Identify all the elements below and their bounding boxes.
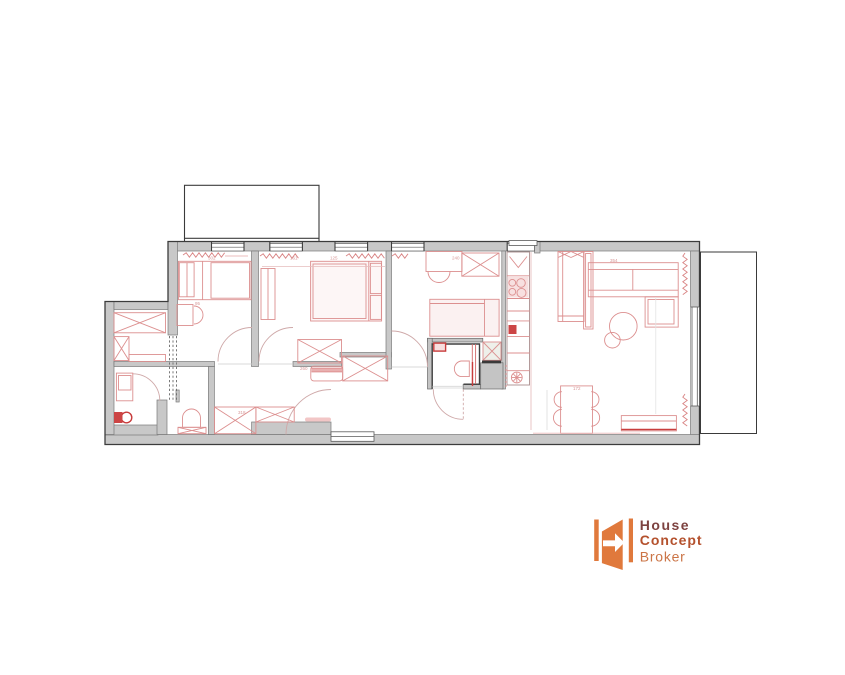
svg-text:125: 125 xyxy=(330,256,338,261)
svg-text:172: 172 xyxy=(573,386,581,391)
svg-text:95: 95 xyxy=(195,301,201,306)
svg-text:260: 260 xyxy=(300,366,308,371)
svg-text:161: 161 xyxy=(290,256,298,261)
svg-text:318: 318 xyxy=(238,410,246,415)
svg-text:Broker: Broker xyxy=(640,548,686,564)
svg-text:Concept: Concept xyxy=(640,532,703,548)
svg-text:302: 302 xyxy=(208,256,216,261)
svg-text:240: 240 xyxy=(452,256,460,261)
svg-text:354: 354 xyxy=(610,258,618,263)
svg-text:House: House xyxy=(640,517,690,533)
